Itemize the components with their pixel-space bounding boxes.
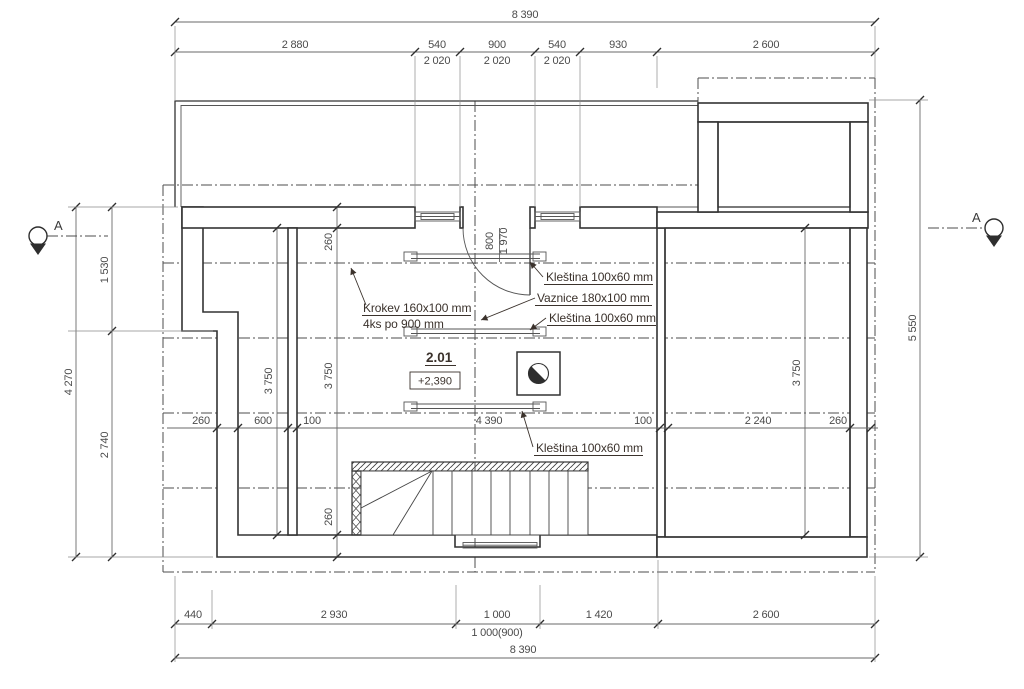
dim-bottom-2: 2 930 xyxy=(321,609,348,621)
dim-int-5: 100 xyxy=(634,415,652,427)
dim-bottom-opening: 1 000(900) xyxy=(471,627,522,639)
chimney-symbol xyxy=(517,352,560,395)
dim-top-4: 540 xyxy=(548,39,566,51)
top-wall-right xyxy=(580,207,657,228)
dim-sill-3: 2 020 xyxy=(544,55,571,67)
dim-bottom-1: 440 xyxy=(184,609,202,621)
dim-int-7: 260 xyxy=(829,415,847,427)
dim-int-1: 260 xyxy=(192,415,210,427)
section-label-right: A xyxy=(972,210,981,225)
dim-v-3750-right: 3 750 xyxy=(791,360,803,387)
room-number: 2.01 xyxy=(426,350,453,365)
door xyxy=(463,228,530,295)
dim-v-3750-mid: 3 750 xyxy=(323,363,335,390)
interior-stud-wall-left xyxy=(288,228,297,535)
label-krokev-1: Krokev 160x100 mm xyxy=(363,301,471,315)
dim-left-lower: 2 740 xyxy=(99,432,111,459)
dim-left-total: 4 270 xyxy=(63,369,75,396)
plan-canvas: A A Kleština 100x60 mm Vaznice 180x100 m… xyxy=(0,0,1024,689)
dim-right-total: 5 550 xyxy=(907,315,919,342)
right-room-bottom-wall xyxy=(657,537,867,557)
stair-side-wall xyxy=(352,471,361,535)
interior-stud-wall-right xyxy=(657,228,665,537)
top-wall-left xyxy=(182,207,415,228)
dim-v-3750-left: 3 750 xyxy=(263,368,275,395)
window-2 xyxy=(535,212,580,221)
dim-top-6: 2 600 xyxy=(753,39,780,51)
right-room-interior xyxy=(665,228,850,537)
dim-top-2: 540 xyxy=(428,39,446,51)
floor-plan-drawing: A A Kleština 100x60 mm Vaznice 180x100 m… xyxy=(0,0,1024,689)
dim-int-2: 600 xyxy=(254,415,272,427)
dim-top-1: 2 880 xyxy=(282,39,309,51)
dim-door-width: 800 xyxy=(484,232,496,250)
label-vaznice: Vaznice 180x100 mm xyxy=(537,291,650,305)
dim-int-4: 4 390 xyxy=(476,415,503,427)
top-wall-pier xyxy=(530,207,535,228)
dim-top-5: 930 xyxy=(609,39,627,51)
dim-sill-1: 2 020 xyxy=(424,55,451,67)
right-room-right-wall xyxy=(850,228,867,537)
dim-top-3: 900 xyxy=(488,39,506,51)
stair-well xyxy=(361,471,588,535)
stair-trimmer-beam xyxy=(352,462,588,471)
window-1 xyxy=(415,212,460,221)
label-klestina-mid: Kleština 100x60 mm xyxy=(549,311,656,325)
section-marker-right: A xyxy=(928,210,1003,247)
room-level: +2,390 xyxy=(418,376,452,388)
dim-door-height: 1 970 xyxy=(498,228,510,255)
dim-int-3: 100 xyxy=(303,415,321,427)
top-right-chamber xyxy=(698,103,868,212)
dim-sill-2: 2 020 xyxy=(484,55,511,67)
dim-v-260-top: 260 xyxy=(323,233,335,251)
windows xyxy=(415,212,580,221)
staircase xyxy=(352,462,588,548)
section-marker-left: A xyxy=(29,218,108,255)
roof-outline xyxy=(175,101,698,207)
top-wall-jamb xyxy=(460,207,463,228)
dim-bottom-3: 1 000 xyxy=(484,609,511,621)
dim-bottom-total: 8 390 xyxy=(510,644,537,656)
label-krokev-2: 4ks po 900 mm xyxy=(363,317,444,331)
dim-bottom-4: 1 420 xyxy=(586,609,613,621)
door-swing-arc xyxy=(463,228,530,295)
dim-int-6: 2 240 xyxy=(745,415,772,427)
label-klestina-top: Kleština 100x60 mm xyxy=(546,270,653,284)
dim-left-upper: 1 530 xyxy=(99,257,111,284)
section-label-left: A xyxy=(54,218,63,233)
label-klestina-bottom: Kleština 100x60 mm xyxy=(536,441,643,455)
dim-bottom-5: 2 600 xyxy=(753,609,780,621)
dim-top-total: 8 390 xyxy=(512,9,539,21)
dim-v-260-bottom: 260 xyxy=(323,508,335,526)
right-room-top-wall xyxy=(657,212,868,228)
